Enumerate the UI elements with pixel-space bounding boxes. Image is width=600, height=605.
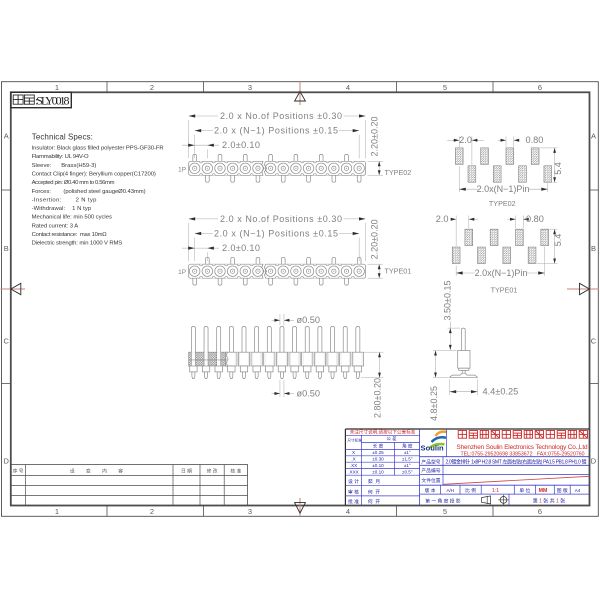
- svg-text:2: 2: [150, 507, 154, 516]
- svg-text:2.0±0.10: 2.0±0.10: [222, 243, 260, 253]
- svg-text:2.0: 2.0: [459, 135, 472, 145]
- svg-text:A4: A4: [575, 488, 581, 493]
- svg-text:序 号: 序 号: [13, 468, 24, 475]
- svg-text:5: 5: [443, 507, 447, 516]
- svg-text:Shenzhen Soulin Electronics Te: Shenzhen Soulin Electronics Technology C…: [457, 444, 588, 451]
- svg-text:Sleeve: Brass(H59-3): Sleeve: Brass(H59-3): [32, 163, 97, 169]
- svg-text:设 变 内 容: 设 变 内 容: [70, 468, 128, 475]
- svg-text:C: C: [3, 337, 9, 346]
- svg-text:C: C: [591, 337, 597, 346]
- svg-text:2.0: 2.0: [436, 214, 449, 224]
- svg-text:TYPE01: TYPE01: [385, 266, 412, 275]
- svg-text:Dielectric strength: min 1000: Dielectric strength: min 1000 V RMS: [32, 241, 123, 247]
- svg-text:±1°: ±1°: [404, 463, 411, 468]
- svg-text:2.20±0.20: 2.20±0.20: [369, 219, 379, 259]
- svg-text:±0.10: ±0.10: [372, 470, 384, 475]
- svg-text:5.4: 5.4: [553, 162, 563, 175]
- svg-text:TYPE02: TYPE02: [385, 168, 412, 177]
- svg-text:尺寸标准: 尺寸标准: [347, 437, 362, 442]
- svg-text:B: B: [591, 244, 596, 253]
- svg-text:±1.5°: ±1.5°: [402, 457, 413, 462]
- svg-text:X: X: [352, 450, 355, 455]
- svg-text:6: 6: [538, 507, 542, 516]
- svg-text:长 度: 长 度: [373, 443, 384, 450]
- svg-text:TYPE01: TYPE01: [491, 286, 518, 295]
- svg-text:±0.30: ±0.30: [372, 457, 384, 462]
- svg-text:.XX: .XX: [350, 463, 357, 468]
- svg-text:Contact Clip(4 finger): Beryll: Contact Clip(4 finger): Beryllium copper…: [32, 171, 156, 177]
- svg-text:.X: .X: [351, 457, 355, 462]
- svg-text:何 开: 何 开: [368, 498, 380, 505]
- svg-text:图 版: 图 版: [557, 487, 568, 494]
- svg-text:D: D: [3, 457, 9, 466]
- svg-text:审 核: 审 核: [348, 488, 359, 495]
- svg-text:第 一 角 度 投 影: 第 一 角 度 投 影: [425, 497, 461, 504]
- svg-text:A: A: [591, 132, 596, 141]
- svg-text:1P: 1P: [178, 166, 186, 173]
- svg-text:Forces: (polished steel: Forces: (polished steel gaugeØ0.43mm): [32, 189, 146, 195]
- svg-text:Technical Specs:: Technical Specs:: [32, 133, 93, 142]
- svg-text:2.0x(N−1)Pin: 2.0x(N−1)Pin: [477, 184, 530, 194]
- svg-text:第 1 张 共 1 张: 第 1 张 共 1 张: [533, 498, 566, 505]
- svg-text:版 本: 版 本: [425, 487, 436, 494]
- svg-text:修 改: 修 改: [207, 468, 218, 475]
- svg-text:2.80±0.20: 2.80±0.20: [373, 378, 383, 418]
- svg-text:1P: 1P: [178, 269, 186, 276]
- svg-text:0.80: 0.80: [526, 214, 544, 224]
- svg-text:Mechanical life: min 500 cycle: Mechanical life: min 500 cycles: [32, 215, 112, 221]
- svg-text:3.50±0.15: 3.50±0.15: [442, 281, 452, 321]
- svg-text:核 准: 核 准: [230, 468, 241, 475]
- svg-text:单 位: 单 位: [519, 487, 530, 494]
- svg-text:1:1: 1:1: [492, 488, 499, 494]
- svg-text:3: 3: [248, 507, 252, 516]
- svg-text:Flammability: UL 94V-O: Flammability: UL 94V-O: [32, 154, 89, 160]
- svg-text:Accepted pin: Ø0.40 mm to 0.56: Accepted pin: Ø0.40 mm to 0.56mm: [32, 180, 115, 186]
- svg-text:2.0 x No.of Positions ±0.30: 2.0 x No.of Positions ±0.30: [220, 214, 342, 224]
- svg-text:2.0x(N−1)Pin: 2.0x(N−1)Pin: [475, 268, 528, 278]
- svg-text:±0.10: ±0.10: [372, 463, 384, 468]
- svg-text:2.0 x (N−1) Positions ±0.15: 2.0 x (N−1) Positions ±0.15: [214, 126, 338, 136]
- svg-text:茹 月: 茹 月: [368, 478, 380, 485]
- svg-text:文件位置: 文件位置: [421, 477, 440, 484]
- svg-text:2.0镀金排针 1x8P H2.8 SMT 左面右贴(右面左: 2.0镀金排针 1x8P H2.8 SMT 左面右贴(右面左贴) PA1.5 P…: [446, 458, 587, 465]
- svg-text:2.0 x No.of Positions ±0.30: 2.0 x No.of Positions ±0.30: [220, 111, 342, 121]
- svg-text:3: 3: [248, 83, 252, 92]
- svg-text:公 差: 公 差: [386, 435, 397, 441]
- svg-text:设 计: 设 计: [348, 478, 359, 485]
- svg-text:1: 1: [55, 83, 59, 92]
- svg-text:角 度: 角 度: [402, 443, 413, 450]
- svg-text:4.8±0.25: 4.8±0.25: [429, 386, 439, 421]
- svg-text:TYPE02: TYPE02: [489, 199, 516, 208]
- svg-text:4.4±0.25: 4.4±0.25: [483, 387, 519, 397]
- svg-text:4: 4: [346, 83, 350, 92]
- svg-text:0.80: 0.80: [526, 135, 544, 145]
- svg-text:产品型号: 产品型号: [421, 458, 440, 465]
- svg-text:何 开: 何 开: [368, 488, 380, 495]
- svg-text:B: B: [4, 244, 9, 253]
- svg-text:Soulin: Soulin: [421, 444, 445, 453]
- svg-text:产品编号: 产品编号: [421, 467, 440, 474]
- svg-text:A: A: [4, 132, 9, 141]
- svg-text:A/H: A/H: [446, 488, 454, 493]
- svg-text:Rated current: 3 A: Rated current: 3 A: [32, 223, 79, 229]
- svg-text:2.0 x (N−1) Positions ±0.15: 2.0 x (N−1) Positions ±0.15: [214, 228, 338, 238]
- svg-text:5.4: 5.4: [553, 234, 563, 247]
- svg-text:.XXX: .XXX: [348, 470, 358, 475]
- svg-text::SLY0018: :SLY0018: [35, 94, 70, 108]
- svg-text:Contact resistance: max 10mΩ: Contact resistance: max 10mΩ: [32, 232, 108, 238]
- svg-text:±0.25: ±0.25: [372, 450, 384, 455]
- svg-text:日 期: 日 期: [181, 469, 192, 475]
- svg-text:比 例: 比 例: [465, 487, 476, 494]
- svg-text:ø0.50: ø0.50: [297, 388, 321, 398]
- svg-text:2: 2: [150, 83, 154, 92]
- svg-text:5: 5: [443, 83, 447, 92]
- svg-text:Insulator: Black glass filled: Insulator: Black glass filled polyester …: [32, 146, 164, 152]
- svg-text:-Insertion: 2 N typ: -Insertion: 2 N typ: [32, 197, 98, 203]
- svg-text:2.20±0.20: 2.20±0.20: [369, 117, 379, 157]
- svg-text:-Withdrawal: 1 N typ: -Withdrawal: 1 N typ: [32, 206, 92, 212]
- svg-text:4: 4: [346, 507, 350, 516]
- svg-text:未注尺寸说明,请按以下公差标准: 未注尺寸说明,请按以下公差标准: [350, 428, 416, 435]
- svg-text:MM: MM: [539, 488, 548, 494]
- svg-text:6: 6: [538, 83, 542, 92]
- svg-text:±1°: ±1°: [404, 450, 411, 455]
- svg-text:2.0±0.10: 2.0±0.10: [222, 140, 260, 150]
- svg-text:D: D: [591, 457, 597, 466]
- svg-text:1: 1: [55, 507, 59, 516]
- svg-text:±0.5°: ±0.5°: [402, 470, 413, 475]
- svg-text:ø0.50: ø0.50: [297, 315, 321, 325]
- svg-text:批 准: 批 准: [348, 498, 359, 505]
